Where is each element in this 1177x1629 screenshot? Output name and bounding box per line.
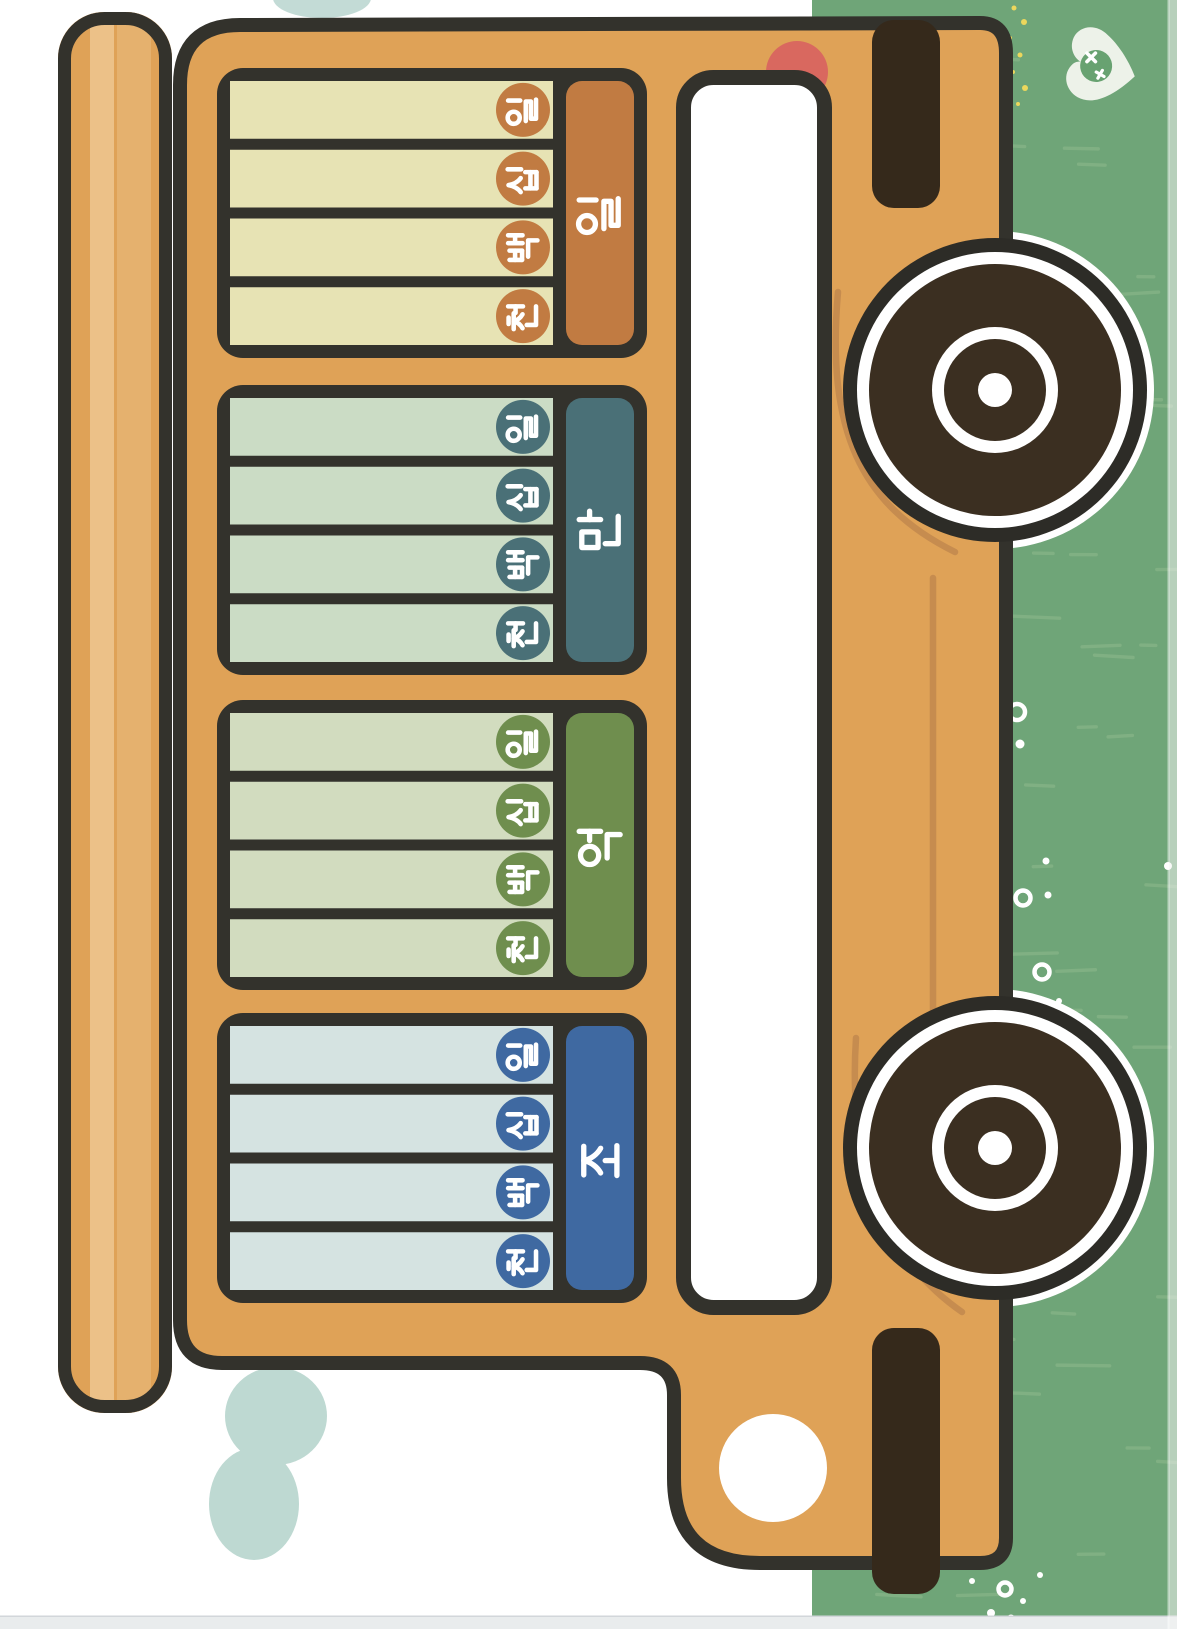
bubble-dot-icon [969, 1578, 975, 1584]
grass-blade-stroke [1076, 725, 1098, 729]
place-badge [496, 220, 550, 274]
place-badge [496, 1165, 550, 1219]
page-right-edge-line [1168, 0, 1170, 1629]
grass-blade-stroke [1032, 551, 1055, 555]
bubble-dot-icon [1020, 1598, 1026, 1604]
headlight-icon [719, 1414, 827, 1522]
smoke-cloud-icon [225, 1367, 327, 1465]
place-badge [496, 1028, 550, 1082]
grass-blade-stroke [1139, 643, 1157, 647]
sparkle-dot-icon [1016, 102, 1020, 106]
grass-blade-stroke [1125, 1446, 1150, 1450]
worksheet-page: 일 만 억 조 일 십 백 천 [0, 0, 1177, 1629]
place-badge [496, 784, 550, 838]
group-header-strip [566, 81, 634, 345]
wheel-icon [843, 996, 1147, 1300]
group-header-strip [566, 398, 634, 662]
sparkle-dot-icon [1022, 85, 1028, 91]
group-header-strip [566, 1026, 634, 1290]
page-bottom-edge-line [0, 1616, 1177, 1618]
smoke-cloud-icon [209, 1448, 299, 1560]
group-header-strip [566, 713, 634, 977]
grass-blade-stroke [1055, 1363, 1111, 1367]
bubble-dot-icon [1043, 858, 1050, 865]
place-badge [496, 400, 550, 454]
page-bottom-edge [0, 1616, 1177, 1629]
bumper-icon [872, 1328, 940, 1594]
place-badge [496, 83, 550, 137]
bumper-icon [872, 20, 940, 208]
roof-stripe [90, 12, 114, 1413]
place-value-group-man [217, 385, 647, 675]
sparkle-dot-icon [1018, 53, 1023, 58]
roof-stripe [117, 12, 151, 1413]
sparkle-dot-icon [1012, 6, 1017, 11]
smoke-cloud-icon [273, 0, 371, 18]
wheel-hub [978, 373, 1012, 407]
grass-blade-stroke [1077, 1552, 1106, 1556]
place-badge [496, 537, 550, 591]
bus-window [684, 78, 825, 1308]
place-value-group-eok [217, 700, 647, 990]
place-badge [496, 715, 550, 769]
grass-blade-stroke [1063, 146, 1100, 150]
place-value-group-il [217, 68, 647, 358]
grass-blade-stroke [1136, 275, 1155, 279]
bus-scene [0, 0, 1177, 1629]
place-value-group-jo [217, 1013, 647, 1303]
place-badge [496, 152, 550, 206]
sparkle-dot-icon [1021, 19, 1027, 25]
bubble-dot-icon [1045, 892, 1052, 899]
grass-blade-stroke [1097, 1015, 1128, 1019]
place-badge [496, 1097, 550, 1151]
bubble-dot-icon [1016, 740, 1025, 749]
place-badge [496, 469, 550, 523]
grass-blade-stroke [1132, 1045, 1172, 1048]
bus-roof-bar [58, 12, 172, 1413]
page-right-edge [1169, 0, 1177, 1629]
bubble-dot-icon [1037, 1572, 1043, 1578]
place-badge [496, 852, 550, 906]
wheel-icon [843, 238, 1147, 542]
grass-blade-stroke [1069, 553, 1098, 557]
wheel-hub [978, 1131, 1012, 1165]
